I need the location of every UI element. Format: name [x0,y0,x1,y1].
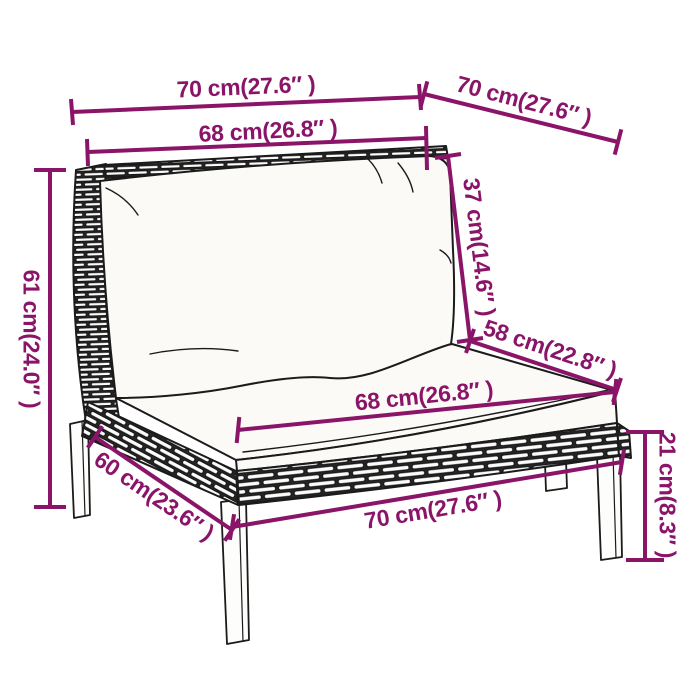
sofa-drawing [70,146,631,644]
dim-label-top-width: 70 cm(27.6″ ) [176,72,316,101]
front-right-leg [597,452,622,560]
dim-label-leg-height: 21 cm(8.3″ ) [656,432,679,558]
back-cushion [100,156,454,398]
dim-label-overall-height: 61 cm(24.0″ ) [20,270,43,409]
diagram-stage: 70 cm(27.6″ ) 70 cm(27.6″ ) 68 cm(26.8″ … [0,0,700,700]
